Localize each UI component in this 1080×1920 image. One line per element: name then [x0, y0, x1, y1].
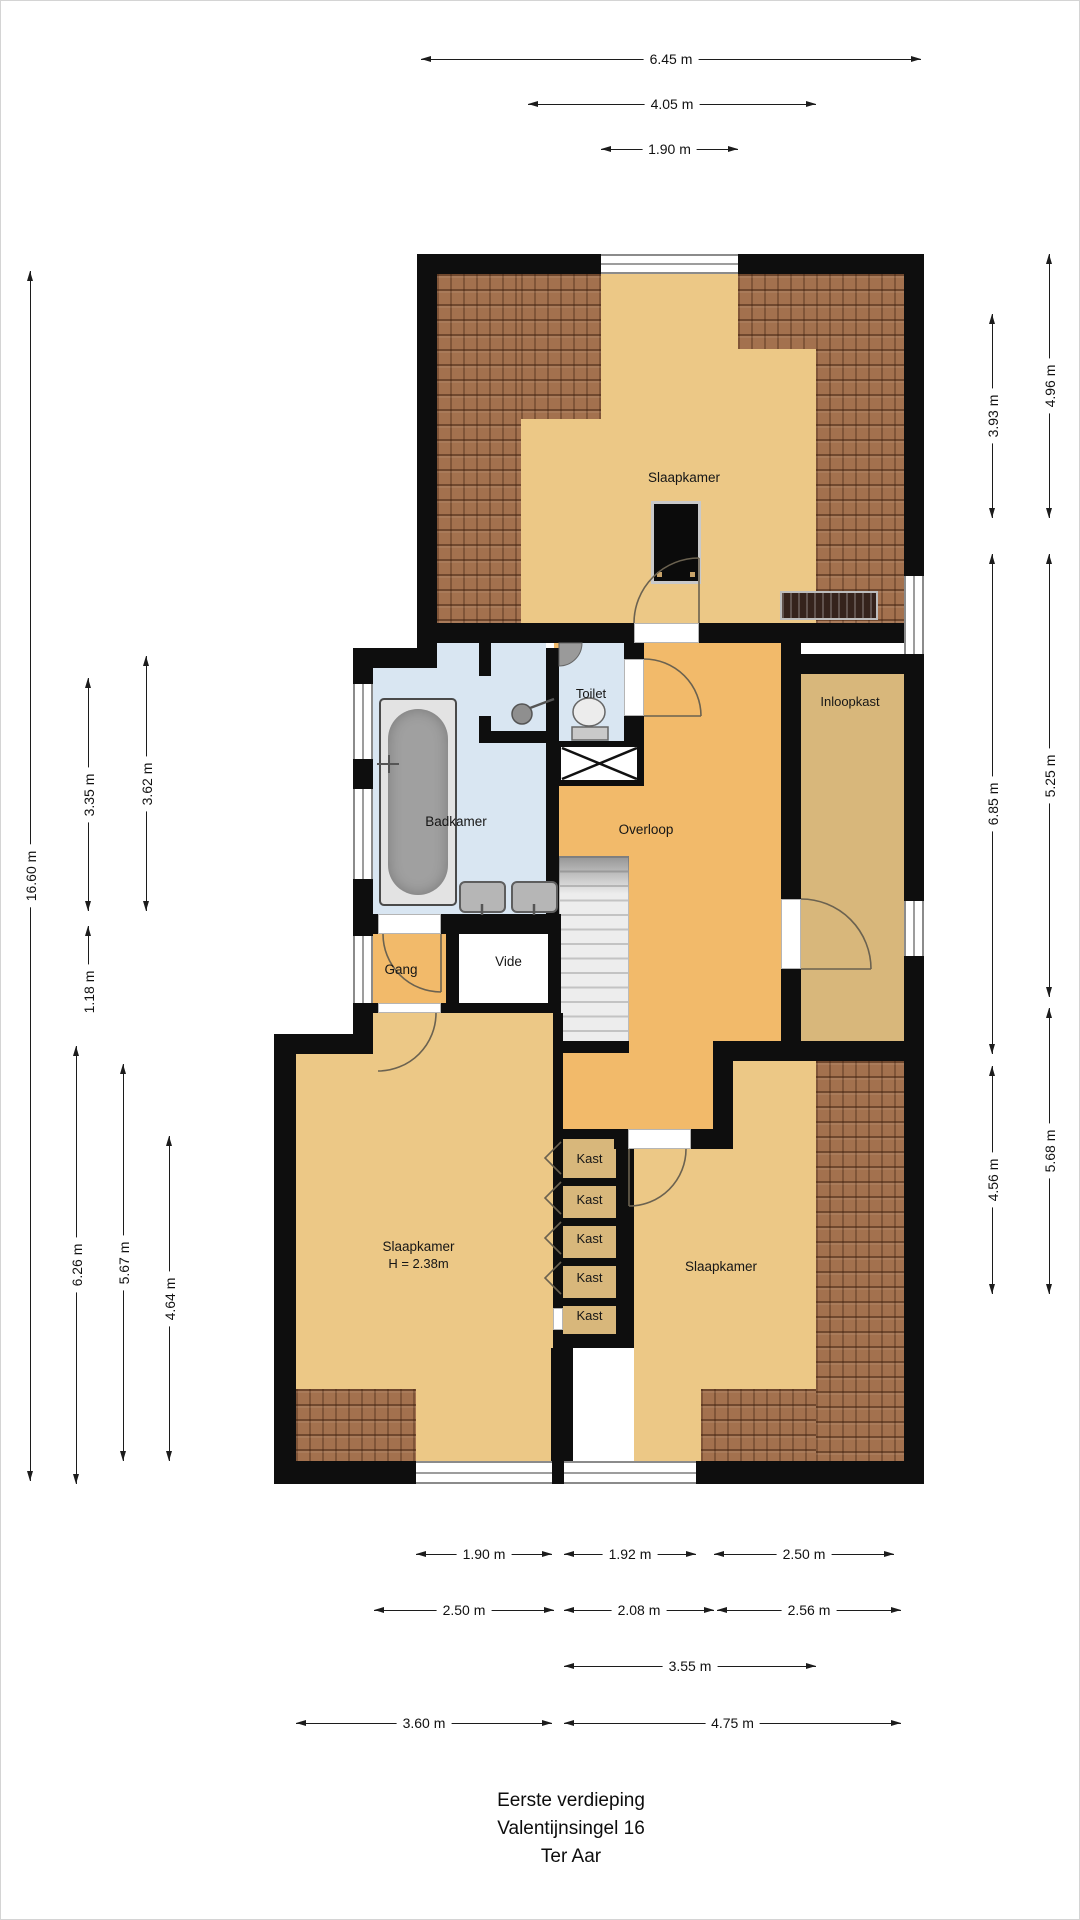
floorplan-canvas: Slaapkamer Toilet Badkamer Overloop Inlo…	[0, 0, 1080, 1920]
room-label-vide: Vide	[466, 953, 551, 970]
dimension-bottom-192: 1.92 m	[564, 1547, 696, 1563]
title-block: Eerste verdieping Valentijnsingel 16 Ter…	[291, 1787, 851, 1871]
shower-head-icon	[512, 699, 554, 724]
door-swing-inloopkast	[801, 899, 871, 969]
dimension-left-362: 3.62 m	[139, 656, 155, 911]
dimension-right-496: 4.96 m	[1042, 254, 1058, 518]
dimension-right-393: 3.93 m	[985, 314, 1001, 518]
door-swing-slaapkamer-top	[634, 558, 699, 623]
door-swing-gang	[378, 1013, 436, 1071]
room-label-kast-4: Kast	[561, 1269, 618, 1286]
dimension-bottom-190: 1.90 m	[416, 1547, 552, 1563]
sink-tap-icons	[482, 904, 534, 915]
bath-tap-icon	[377, 755, 399, 773]
room-label-slaapkamer-top: Slaapkamer	[601, 469, 767, 486]
dimension-top-405: 4.05 m	[528, 97, 816, 113]
dimension-top-190: 1.90 m	[601, 142, 738, 158]
shaft-cross-icon	[562, 748, 637, 779]
dimension-left-464: 4.64 m	[162, 1136, 178, 1461]
room-label-slaapkamer-right: Slaapkamer	[631, 1258, 811, 1275]
corner-basin-icon	[559, 643, 582, 666]
room-label-inloopkast: Inloopkast	[790, 693, 910, 710]
room-label-slaapkamer-left-name: Slaapkamer	[331, 1238, 506, 1255]
room-label-overloop: Overloop	[586, 821, 706, 838]
room-label-slaapkamer-left-height: H = 2.38m	[331, 1255, 506, 1272]
room-label-badkamer: Badkamer	[391, 813, 521, 830]
room-label-kast-1: Kast	[561, 1150, 618, 1167]
dimension-bottom-475: 4.75 m	[564, 1716, 901, 1732]
room-label-gang: Gang	[366, 961, 436, 978]
dimension-right-525: 5.25 m	[1042, 554, 1058, 997]
title-address: Valentijnsingel 16	[291, 1815, 851, 1843]
dimension-right-456: 4.56 m	[985, 1066, 1001, 1294]
title-floor: Eerste verdieping	[291, 1787, 851, 1815]
door-swing-arcs	[378, 558, 871, 1206]
dimension-right-685: 6.85 m	[985, 554, 1001, 1054]
dimension-bottom-360: 3.60 m	[296, 1716, 552, 1732]
room-label-slaapkamer-left: Slaapkamer H = 2.38m	[331, 1238, 506, 1272]
dimension-left-567: 5.67 m	[116, 1064, 132, 1461]
dimension-bottom-250b: 2.50 m	[714, 1547, 894, 1563]
door-swing-slaapkamer-right	[629, 1149, 686, 1206]
dimension-top-645: 6.45 m	[421, 52, 921, 68]
dimension-bottom-355: 3.55 m	[564, 1659, 816, 1675]
room-label-kast-5: Kast	[561, 1307, 618, 1324]
kast-door-icons	[545, 1142, 561, 1294]
room-label-toilet: Toilet	[549, 685, 633, 702]
dimension-bottom-256: 2.56 m	[717, 1603, 901, 1619]
dimension-left-626: 6.26 m	[69, 1046, 85, 1484]
title-city: Ter Aar	[291, 1843, 851, 1871]
dimension-left-335: 3.35 m	[81, 678, 97, 911]
dimension-bottom-208: 2.08 m	[564, 1603, 714, 1619]
room-label-kast-3: Kast	[561, 1230, 618, 1247]
toilet-icon	[572, 698, 608, 740]
dimension-right-568: 5.68 m	[1042, 1008, 1058, 1294]
dimension-left-118: 1.18 m	[81, 926, 97, 1008]
dimension-left-1660: 16.60 m	[23, 271, 39, 1481]
dimension-bottom-250a: 2.50 m	[374, 1603, 554, 1619]
room-label-kast-2: Kast	[561, 1191, 618, 1208]
door-swing-toilet	[644, 659, 701, 716]
